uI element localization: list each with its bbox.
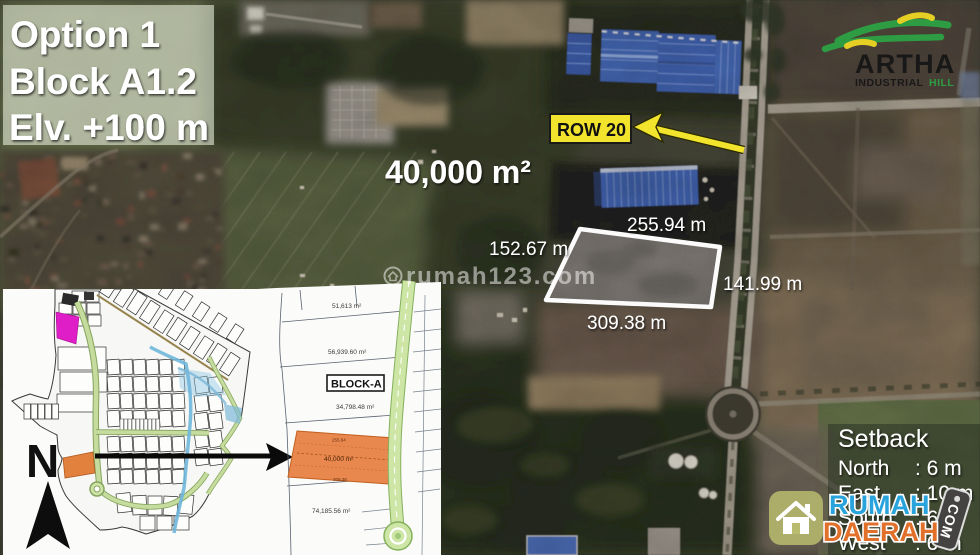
svg-text:Setback: Setback bbox=[838, 425, 929, 453]
svg-text:INDUSTRIAL: INDUSTRIAL bbox=[855, 77, 924, 89]
svg-text:: 6 m: : 6 m bbox=[915, 457, 962, 480]
svg-text:74,185.56 m²: 74,185.56 m² bbox=[312, 508, 351, 515]
svg-text:rumah123.com: rumah123.com bbox=[406, 263, 597, 290]
svg-text:309.38 m: 309.38 m bbox=[587, 313, 666, 334]
svg-text:ROW 20: ROW 20 bbox=[557, 120, 626, 140]
svg-text:255.94: 255.94 bbox=[332, 438, 346, 443]
svg-text:BLOCK-A: BLOCK-A bbox=[331, 379, 382, 391]
svg-text:141.99 m: 141.99 m bbox=[723, 274, 802, 295]
svg-text:ARTHA: ARTHA bbox=[855, 49, 956, 79]
svg-text:HILL: HILL bbox=[929, 77, 954, 89]
svg-text:40,000 m²: 40,000 m² bbox=[324, 456, 354, 463]
svg-text:40,000 m²: 40,000 m² bbox=[385, 154, 531, 190]
svg-text:North: North bbox=[838, 457, 889, 480]
svg-text:RUMAH: RUMAH bbox=[829, 490, 930, 520]
svg-text:255.94 m: 255.94 m bbox=[627, 215, 706, 236]
svg-text:56,939.60 m²: 56,939.60 m² bbox=[328, 349, 367, 356]
svg-text:Option 1: Option 1 bbox=[10, 14, 160, 55]
svg-text:152.67 m: 152.67 m bbox=[489, 239, 568, 260]
svg-text:51,613 m²: 51,613 m² bbox=[332, 303, 362, 310]
svg-text:Elv. +100 m: Elv. +100 m bbox=[9, 107, 209, 148]
svg-text:309.38: 309.38 bbox=[333, 477, 347, 482]
svg-text:34,798.48 m²: 34,798.48 m² bbox=[336, 404, 375, 411]
svg-text:N: N bbox=[26, 435, 59, 487]
svg-text:DAERAH: DAERAH bbox=[823, 517, 939, 547]
svg-text:Block A1.2: Block A1.2 bbox=[9, 61, 197, 102]
